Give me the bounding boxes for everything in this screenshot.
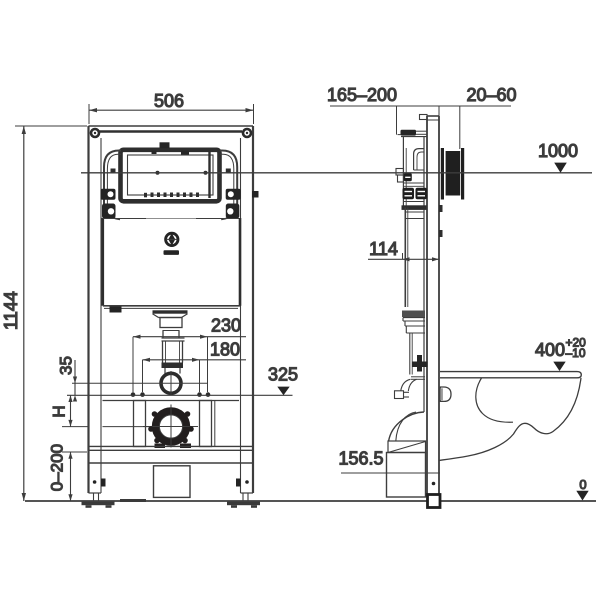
svg-text:H: H	[50, 405, 69, 417]
svg-text:35: 35	[57, 356, 76, 375]
svg-text:156.5: 156.5	[338, 449, 383, 469]
svg-text:165–200: 165–200	[327, 85, 397, 105]
svg-text:506: 506	[154, 91, 184, 111]
svg-text:0–200: 0–200	[48, 444, 67, 491]
svg-text:230: 230	[211, 316, 241, 336]
svg-text:180: 180	[210, 340, 240, 360]
svg-text:1000: 1000	[538, 141, 578, 161]
svg-text:–10: –10	[566, 346, 586, 360]
svg-text:20–60: 20–60	[466, 85, 516, 105]
svg-text:0: 0	[579, 477, 586, 492]
svg-text:400: 400	[535, 340, 565, 360]
svg-text:114: 114	[369, 239, 398, 259]
svg-text:1144: 1144	[1, 291, 21, 330]
svg-text:325: 325	[268, 365, 298, 385]
